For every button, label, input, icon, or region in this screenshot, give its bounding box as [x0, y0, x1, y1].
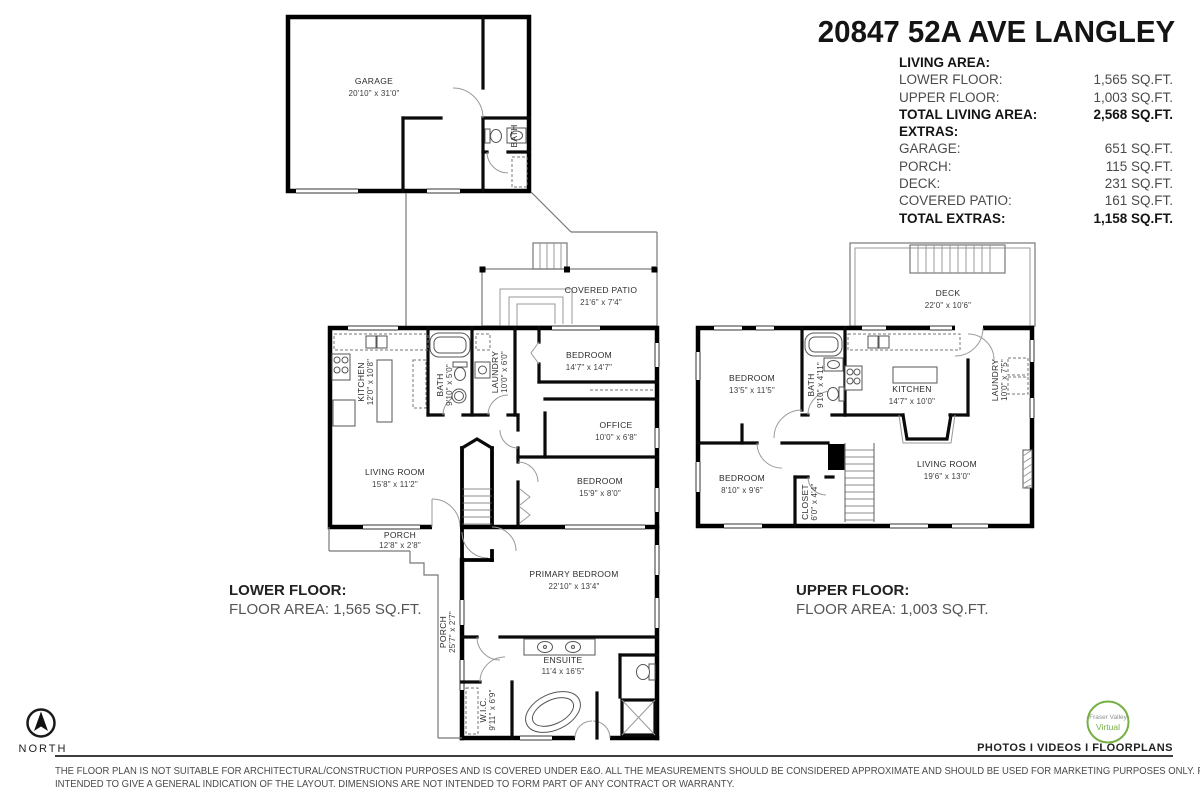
room-dims-laundry: 10'0" x 6'0"	[500, 351, 509, 393]
door-opening	[955, 324, 983, 332]
logo-text-top: Fraser Valley	[1089, 714, 1128, 721]
brand-tagline: PHOTOS I VIDEOS I FLOORPLANS	[977, 742, 1173, 754]
upper-floorplan: BEDROOM 13'5" x 11'5" BATH 9'10" x 4'11"…	[694, 324, 1036, 530]
disclaimer: THE FLOOR PLAN IS NOT SUITABLE FOR ARCHI…	[55, 765, 1176, 791]
room-dims-upper-bedroom2: 8'10" x 9'6"	[721, 486, 763, 495]
room-label-laundry: LAUNDRY	[490, 351, 500, 394]
sink-icon	[824, 358, 843, 371]
room-dims-covered-patio: 21'6" x 7'4"	[580, 298, 622, 307]
room-dims-bedroom2: 15'9" x 8'0"	[579, 489, 621, 498]
brand-logo: Fraser Valley Virtual	[1088, 702, 1129, 743]
disclaimer-line1: THE FLOOR PLAN IS NOT SUITABLE FOR ARCHI…	[55, 765, 1176, 778]
garage-floorplan: GARAGE 20'10" x 31'0" BATH	[288, 17, 529, 195]
room-label-covered-patio: COVERED PATIO	[565, 285, 638, 295]
room-label-kitchen: KITCHEN	[356, 362, 366, 401]
room-label-upper-bath: BATH	[806, 373, 816, 396]
room-label-garage-bath: BATH	[509, 124, 519, 147]
toilet-icon	[485, 129, 502, 143]
room-label-living-room: LIVING ROOM	[365, 467, 425, 477]
logo-text-bottom: Virtual	[1096, 722, 1120, 732]
toilet-icon	[828, 387, 845, 401]
shower-icon	[622, 700, 655, 735]
lower-floorplan: KITCHEN 12'0" x 10'8" BATH 9'10" x 5'0" …	[329, 324, 661, 742]
room-label-bedroom1: BEDROOM	[566, 350, 612, 360]
room-dims-primary-bedroom: 22'10" x 13'4"	[548, 582, 599, 591]
room-dims-upper-bath: 9'10" x 4'11"	[816, 362, 825, 408]
room-dims-porch-front: 12'8" x 2'8"	[379, 541, 421, 550]
room-dims-upper-laundry: 10'0" x 7'5"	[1000, 359, 1009, 401]
fireplace-vent	[1023, 450, 1032, 488]
room-dims-kitchen: 12'0" x 10'8"	[366, 359, 375, 405]
floorplan-document: { "title": "20847 52A AVE LANGLEY", "sum…	[0, 0, 1200, 800]
sink-icon	[455, 392, 464, 401]
disclaimer-line2: INTENDED TO GIVE A GENERAL INDICATION OF…	[55, 778, 1176, 791]
covered-patio: COVERED PATIO 21'6" x 7'4"	[480, 267, 658, 327]
room-dims-upper-bedroom1: 13'5" x 11'5"	[729, 386, 775, 395]
door-opening	[575, 734, 610, 742]
room-label-wic: W.I.C.	[478, 698, 488, 723]
room-dims-wic: 9'11" x 6'9"	[488, 689, 497, 730]
north-label: NORTH	[19, 743, 68, 755]
room-label-upper-bedroom2: BEDROOM	[719, 473, 765, 483]
room-label-upper-kitchen: KITCHEN	[892, 384, 931, 394]
room-dims-upper-kitchen: 14'7" x 10'0"	[889, 397, 935, 406]
room-label-upper-living-room: LIVING ROOM	[917, 459, 977, 469]
room-label-ensuite: ENSUITE	[544, 655, 583, 665]
north-arrow-icon	[34, 712, 48, 732]
north-compass: NORTH	[19, 710, 68, 756]
room-label-bedroom2: BEDROOM	[577, 476, 623, 486]
room-label-bath: BATH	[435, 373, 445, 396]
room-dims-upper-living-room: 19'6" x 13'0"	[924, 472, 970, 481]
deck: DECK 22'0" x 10'6"	[850, 243, 1035, 326]
footer-divider	[55, 755, 1173, 757]
room-dims-bedroom1: 14'7" x 14'7"	[566, 363, 612, 372]
door-arc	[480, 657, 505, 682]
toilet-icon	[637, 664, 656, 680]
room-dims-living-room: 15'8" x 11'2"	[372, 480, 418, 489]
laundry-sink-icon	[479, 366, 487, 374]
room-label-porch-front: PORCH	[384, 530, 416, 540]
room-label-upper-laundry: LAUNDRY	[990, 359, 1000, 402]
door-opening	[432, 523, 460, 531]
bathtub-icon	[519, 683, 587, 740]
room-dims-porch-side: 25'7" x 2'7"	[448, 611, 457, 653]
room-dims-deck: 22'0" x 10'6"	[925, 301, 971, 310]
room-dims-office: 10'0" x 6'8"	[595, 433, 637, 442]
door-arc	[477, 637, 500, 660]
floorplan-canvas: GARAGE 20'10" x 31'0" BATH COVERED PATIO…	[0, 0, 1200, 800]
room-dims-garage: 20'10" x 31'0"	[348, 89, 399, 98]
room-label-office: OFFICE	[600, 420, 633, 430]
vanity-double-sink	[524, 639, 595, 655]
toilet-icon	[453, 362, 467, 381]
room-label-primary-bedroom: PRIMARY BEDROOM	[529, 569, 618, 579]
room-dims-ensuite: 11'4 x 16'5"	[542, 667, 585, 676]
bathtub-icon	[805, 333, 842, 356]
room-dims-upper-closet: 6'0" x 4'4"	[810, 483, 819, 520]
closet-shelf	[466, 688, 478, 734]
room-dims-bath: 9'10" x 5'0"	[445, 364, 454, 406]
room-label-garage: GARAGE	[355, 76, 393, 86]
room-label-upper-bedroom1: BEDROOM	[729, 373, 775, 383]
room-label-porch-side: PORCH	[438, 616, 448, 648]
room-label-deck: DECK	[936, 288, 961, 298]
bathtub-icon	[430, 333, 470, 357]
room-label-upper-closet: CLOSET	[800, 484, 810, 520]
